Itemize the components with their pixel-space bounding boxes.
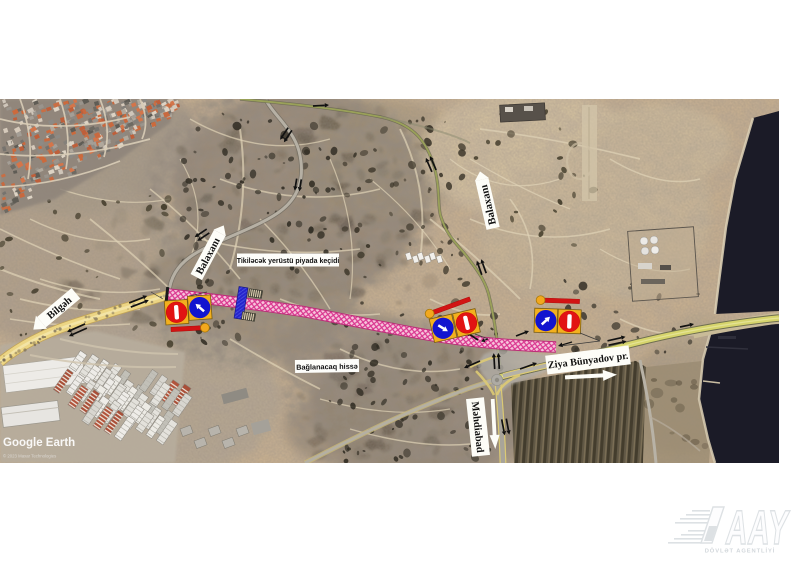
svg-text:Tikiləcək yerüstü piyada keçid: Tikiləcək yerüstü piyada keçidi xyxy=(237,258,340,265)
svg-text:© 2023 Maxar Technologies: © 2023 Maxar Technologies xyxy=(3,454,56,459)
svg-text:Google Earth: Google Earth xyxy=(3,437,75,449)
svg-text:Bağlanacaq hissə: Bağlanacaq hissə xyxy=(296,362,358,372)
svg-text:AAY: AAY xyxy=(725,502,790,555)
svg-text:DÖVLƏT AGENTLİYİ: DÖVLƏT AGENTLİYİ xyxy=(705,548,776,555)
